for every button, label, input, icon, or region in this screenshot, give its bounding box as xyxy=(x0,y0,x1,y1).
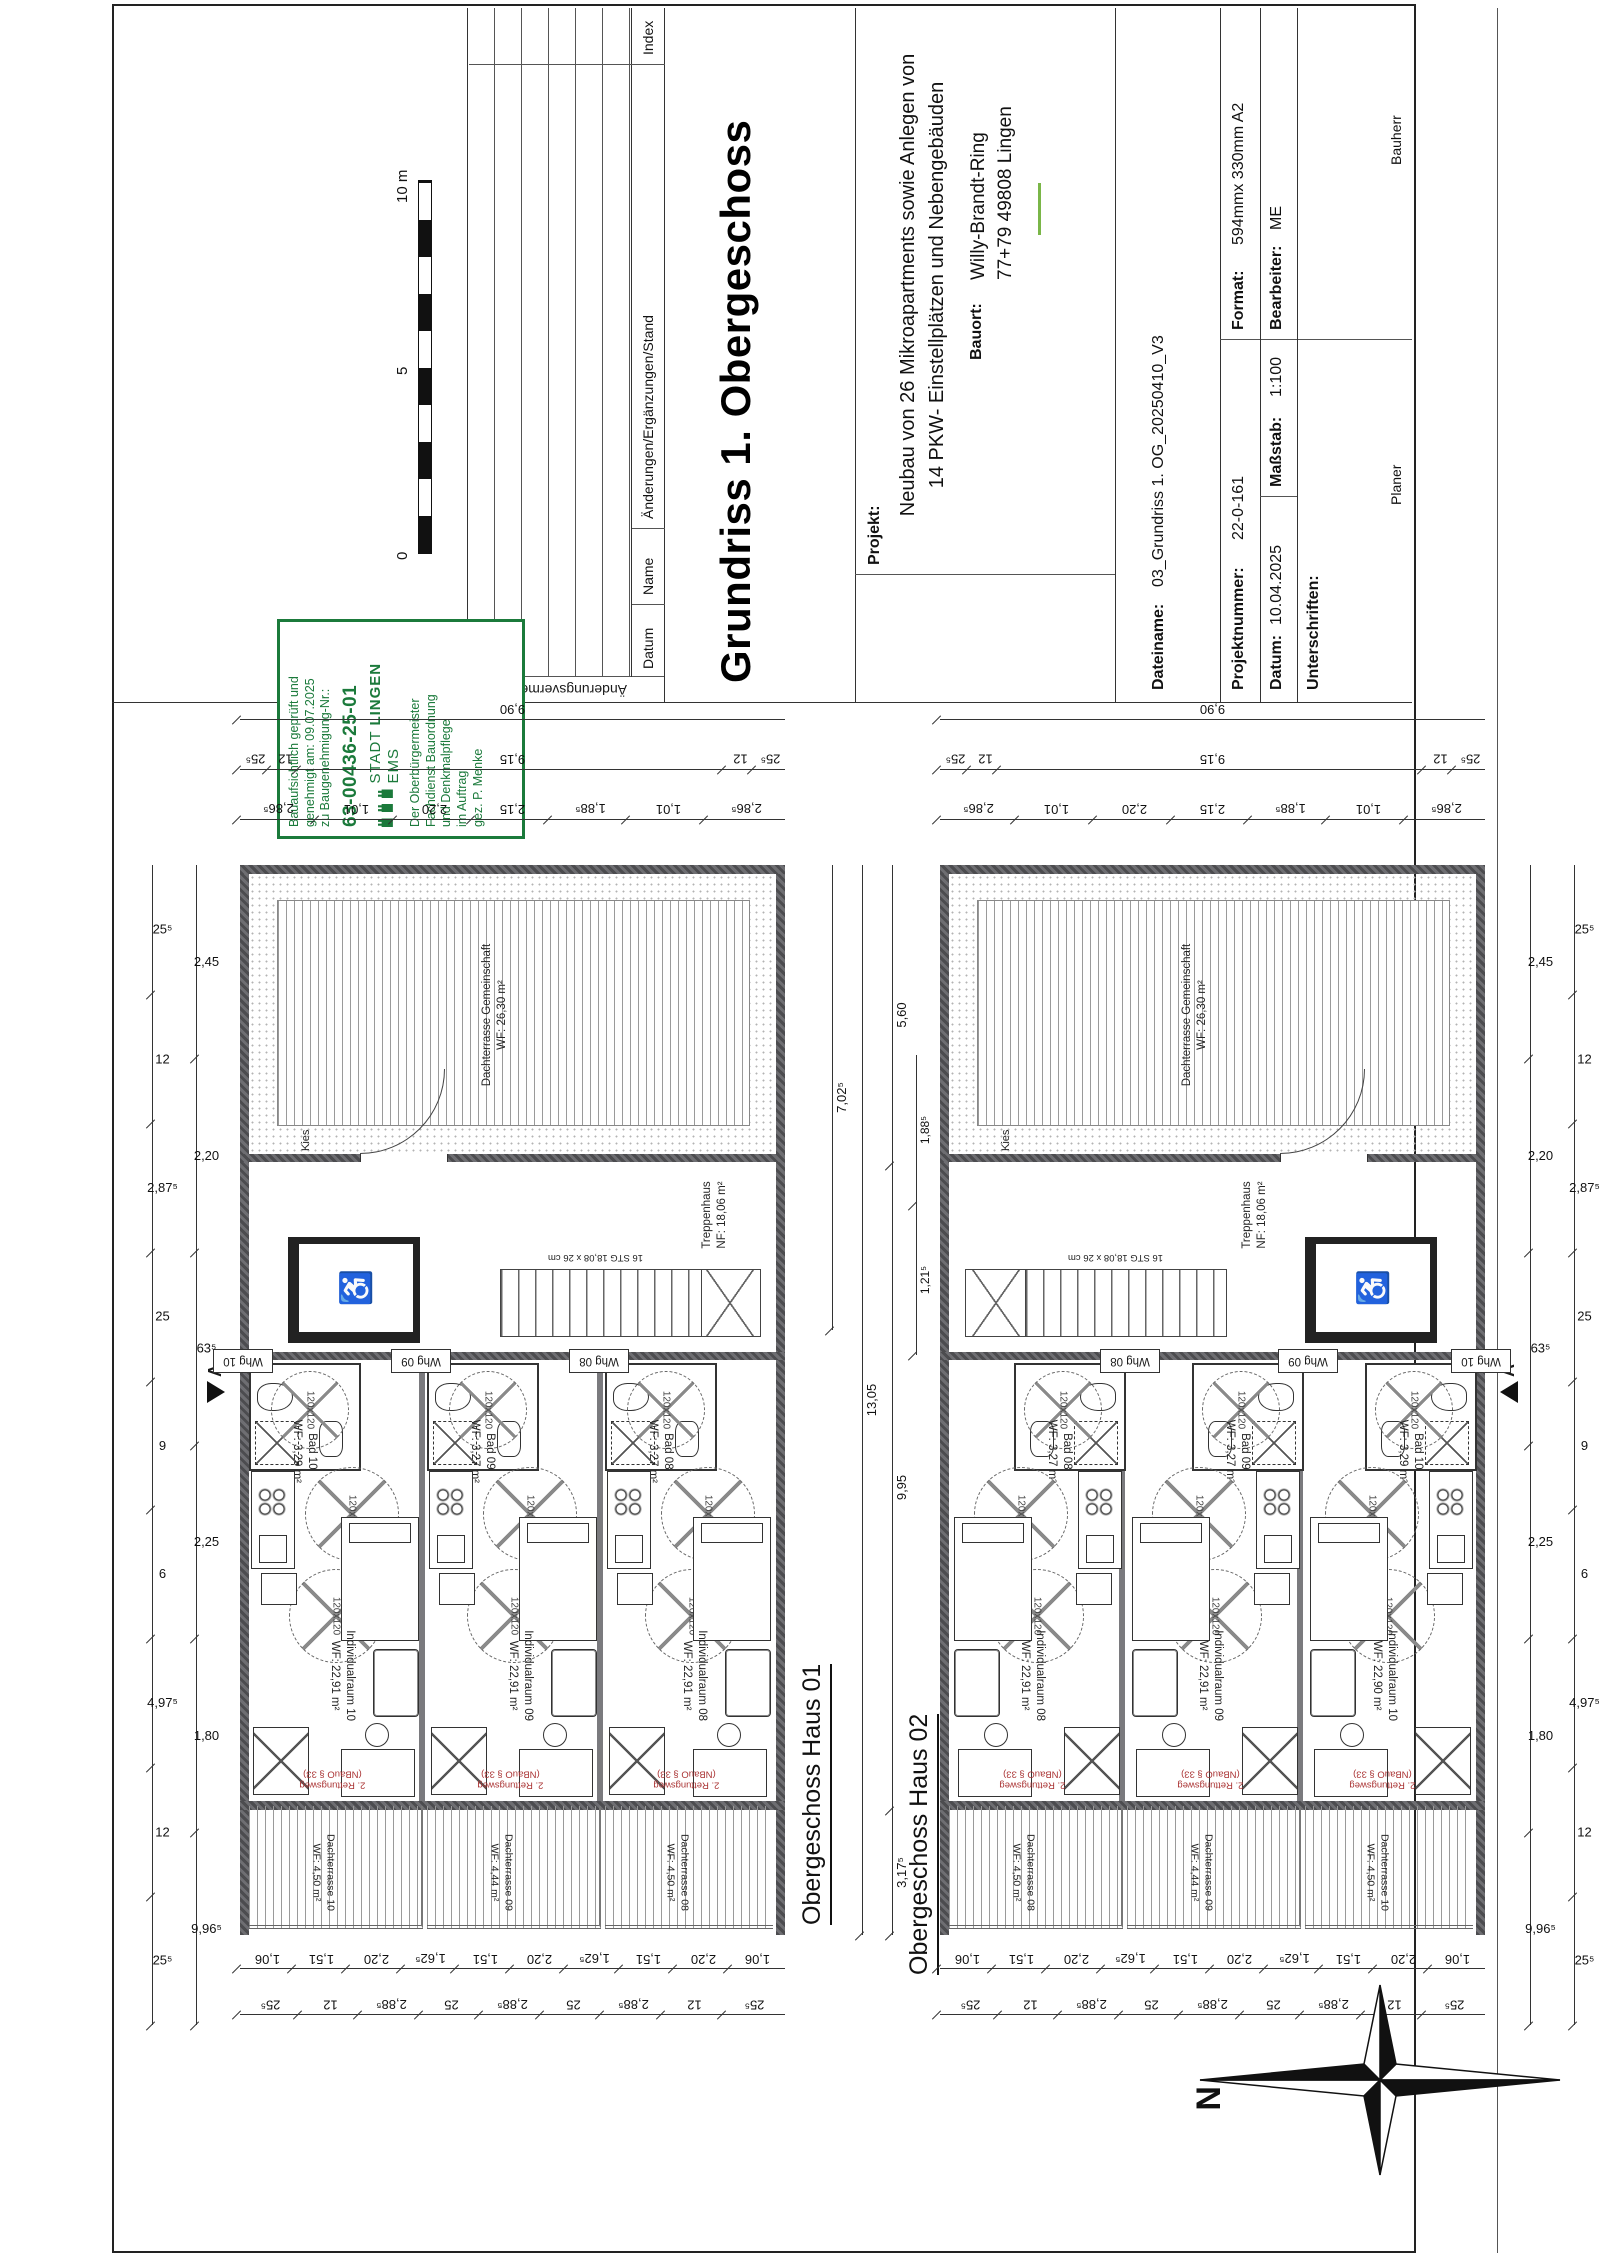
projektnummer-value: 22-0-161 xyxy=(1230,476,1248,540)
gap-dim-small: 1,21⁵ 1,88⁵ xyxy=(916,1055,933,1355)
bad-name: Bad 09 xyxy=(1237,1420,1252,1483)
sofa xyxy=(373,1649,419,1717)
haus01-wall-right xyxy=(240,865,785,874)
dim-value: 25⁵ xyxy=(260,1997,280,2012)
haus02-dim-right-inner: 2,86⁵ 1,01 2,20 2,15 1,88⁵ 1,01 2,86⁵ xyxy=(940,799,1485,820)
dim-value: 4,97⁵ xyxy=(147,1695,178,1710)
sofa xyxy=(954,1649,1000,1717)
dim-value: 12 xyxy=(978,752,992,767)
balcony-name: Dachterrasse 09 xyxy=(501,1834,515,1911)
haus01-wall-bottom xyxy=(776,865,785,1935)
haus01-stair-winder xyxy=(700,1269,761,1337)
dim-value: 2,86⁵ xyxy=(1431,801,1462,816)
dim-value: 9 xyxy=(1581,1437,1588,1452)
haus01-unit-whg08: 120x120 Bad 08 WF: 3,27 m² 120x120 120x1… xyxy=(605,1360,773,1801)
escape-route-line2: (NBauO § 33) xyxy=(460,1768,560,1779)
dim-value: 1,80 xyxy=(1528,1728,1553,1743)
dim-value: 1,62⁵ xyxy=(1115,1951,1146,1966)
dim-value: 2,15 xyxy=(500,802,525,817)
dim-value: 2,20 xyxy=(194,1148,219,1163)
individualraum-area: WF: 22,90 m² xyxy=(1369,1630,1384,1721)
haus01-terrace-label: Dachterrasse Gemeinschaft WF: 26,30 m² xyxy=(480,925,510,1105)
dim-value: 2,88⁵ xyxy=(376,1997,407,2012)
desk-chair xyxy=(984,1723,1008,1747)
balcony-name: Dachterrasse 08 xyxy=(1023,1834,1037,1911)
datum-value: 10.04.2025 xyxy=(1268,545,1286,625)
dim-value: 13,05 xyxy=(864,1384,879,1417)
haus02-dim-left-inner: 1,06 1,51 2,20 1,62⁵ 1,51 2,20 1,62⁵ 1,5… xyxy=(940,1950,1485,1969)
dim-value: 25⁵ xyxy=(960,1997,980,2012)
balcony-area: WF: 4,50 m² xyxy=(1009,1834,1023,1911)
individualraum-label: Individualraum 08 WF: 22,91 m² xyxy=(679,1630,709,1721)
kitchen-sink xyxy=(1086,1535,1114,1563)
haus01-kies-label: Kies xyxy=(300,1130,312,1151)
dim-value: 2,45 xyxy=(194,954,219,969)
kitchen-hob xyxy=(1262,1487,1292,1517)
dim-value: 12 xyxy=(278,752,292,767)
kitchen-hob xyxy=(257,1487,287,1517)
green-signature-mark xyxy=(1038,183,1041,235)
bad-name: Bad 08 xyxy=(1059,1420,1074,1483)
plan-sheet: Änderungsvermerke Datum Name Änderungen/… xyxy=(0,0,1600,2265)
revision-col-name: Name xyxy=(640,558,656,595)
haus01-elevator-car: ♿ xyxy=(297,1242,415,1334)
balcony-area: WF: 4,44 m² xyxy=(487,1834,501,1911)
bad-label: Bad 09 WF: 3,27 m² xyxy=(1222,1420,1252,1483)
bad-name: Bad 09 xyxy=(482,1420,497,1483)
dim-value: 1,51 xyxy=(1336,1952,1361,1967)
individualraum-name: Individualraum 10 xyxy=(1384,1630,1399,1721)
desk-chair xyxy=(717,1723,741,1747)
stamp-sub3: und Denkmalpflege xyxy=(439,631,455,827)
party-wall xyxy=(419,1360,425,1801)
haus02-dim-right-mid: 25⁵ 12 9,15 12 25⁵ xyxy=(940,749,1485,770)
dim-value: 25⁵ xyxy=(945,752,965,767)
bauort-address-line1: Willy-Brandt-Ring xyxy=(966,106,993,280)
dim-value: 6 xyxy=(1581,1566,1588,1581)
dim-value: 25⁵ xyxy=(1460,752,1480,767)
dim-value: 1,51 xyxy=(1009,1952,1034,1967)
unterschriften-label: Unterschriften: xyxy=(1305,575,1323,690)
balcony-name: Dachterrasse 10 xyxy=(323,1834,337,1911)
individualraum-label: Individualraum 10 WF: 22,91 m² xyxy=(327,1630,357,1721)
dateiname-label: Dateiname: xyxy=(1150,604,1168,690)
revision-col-index: Index xyxy=(640,21,656,55)
dim-value: 12 xyxy=(324,1998,338,2013)
haus02-stair-name: Treppenhaus xyxy=(1240,1165,1255,1265)
dim-value: 25 xyxy=(566,1998,580,2013)
haus02-unit-whg09: 120x120 Bad 09 WF: 3,27 m² 120x120 120x1… xyxy=(1127,1360,1300,1801)
balcony-name: Dachterrasse 10 xyxy=(1377,1834,1391,1911)
sofa xyxy=(551,1649,597,1717)
dim-value: 4,97⁵ xyxy=(1569,1695,1600,1710)
dim-value: 5,60 xyxy=(894,1002,909,1027)
dim-value: 1,62⁵ xyxy=(415,1951,446,1966)
whg-number-box: Whg 09 xyxy=(391,1349,451,1373)
dim-value: 25 xyxy=(155,1309,169,1324)
escape-route-line1: 2. Rettungsweg xyxy=(1332,1779,1432,1790)
escape-route-line2: (NBauO § 33) xyxy=(1332,1768,1432,1779)
individualraum-name: Individualraum 09 xyxy=(1210,1630,1225,1721)
individualraum-label: Individualraum 09 WF: 22,91 m² xyxy=(505,1630,535,1721)
kitchen-hob xyxy=(435,1487,465,1517)
sofa xyxy=(725,1649,771,1717)
bad-name: Bad 08 xyxy=(660,1420,675,1483)
revision-col-datum: Datum xyxy=(640,628,656,669)
sofa xyxy=(1132,1649,1178,1717)
dateiname-value: 03_Grundriss 1. OG_20250410_V3 xyxy=(1150,335,1168,587)
dim-value: 1,51 xyxy=(636,1952,661,1967)
bauort-label: Bauort: xyxy=(968,303,986,360)
scale-label-10m: 10 m xyxy=(394,170,411,203)
stamp-sub4: im Auftrag xyxy=(455,631,471,827)
dim-value: 1,51 xyxy=(1173,1952,1198,1967)
dim-value: 25⁵ xyxy=(153,922,173,937)
haus01-stair-name: Treppenhaus xyxy=(700,1165,715,1265)
dim-value: 2,20 xyxy=(1122,802,1147,817)
stamp-line3: zu Baugenehmigung-Nr.: xyxy=(318,631,334,827)
bed-pillow xyxy=(962,1523,1024,1543)
balcony-area: WF: 4,50 m² xyxy=(1363,1834,1377,1911)
bauort-address: Willy-Brandt-Ring 77+79 49808 Lingen xyxy=(966,106,1019,280)
dim-value: 12 xyxy=(733,752,747,767)
whg-number-box: Whg 10 xyxy=(213,1349,273,1373)
dim-value: 9,90 xyxy=(1200,702,1225,717)
dim-value: 12 xyxy=(155,1824,169,1839)
dim-value: 12 xyxy=(155,1051,169,1066)
table xyxy=(261,1573,297,1605)
haus02-unit-whg10: 120x120 Bad 10 WF: 3,29 m² 120x120 120x1… xyxy=(1305,1360,1473,1801)
kitchen-hob xyxy=(1084,1487,1114,1517)
haus01-terrace-door-gap xyxy=(360,1154,448,1162)
table xyxy=(617,1573,653,1605)
haus01-stair-steps-label: 16 STG 18,08 x 26 cm xyxy=(548,1252,643,1263)
escape-route-line1: 2. Rettungsweg xyxy=(1160,1779,1260,1790)
dim-value: 7,02⁵ xyxy=(834,1082,849,1113)
kitchen-sink xyxy=(437,1535,465,1563)
scale-label-5: 5 xyxy=(394,367,411,375)
bauherr-label: Bauherr xyxy=(1388,115,1404,165)
dim-value: 2,20 xyxy=(422,802,447,817)
kitchen-sink xyxy=(1437,1535,1465,1563)
balcony-label: Dachterrasse 08 WF: 4,50 m² xyxy=(1009,1834,1036,1911)
desk-chair xyxy=(1162,1723,1186,1747)
dim-value: 12 xyxy=(1577,1824,1591,1839)
individualraum-label: Individualraum 08 WF: 22,91 m² xyxy=(1017,1630,1047,1721)
haus01-dim-right-outer: 9,90 xyxy=(240,699,785,720)
revision-table: Änderungsvermerke Datum Name Änderungen/… xyxy=(467,8,665,703)
dim-value: 1,21⁵ xyxy=(918,1266,932,1294)
table xyxy=(439,1573,475,1605)
individualraum-label: Individualraum 10 WF: 22,90 m² xyxy=(1369,1630,1399,1721)
haus02-wall-corridor xyxy=(940,1352,1485,1360)
bed-pillow xyxy=(527,1523,589,1543)
escape-route-label: 2. Rettungsweg (NBauO § 33) xyxy=(982,1768,1082,1791)
haus02-kies-label: Kies xyxy=(1000,1130,1012,1151)
individualraum-name: Individualraum 08 xyxy=(1032,1630,1047,1721)
revision-col-line3 xyxy=(469,64,665,65)
escape-route-line2: (NBauO § 33) xyxy=(1160,1768,1260,1779)
desk-chair xyxy=(365,1723,389,1747)
haus02-balcony-08: Dachterrasse 08 WF: 4,50 m² xyxy=(949,1806,1123,1929)
dim-value: 2,15 xyxy=(1200,802,1225,817)
revision-empty-rows xyxy=(468,8,631,677)
desk-chair xyxy=(1340,1723,1364,1747)
sofa xyxy=(1310,1649,1356,1717)
dim-value: 63⁵ xyxy=(1531,1341,1551,1356)
dim-value: 2,87⁵ xyxy=(1569,1180,1600,1195)
dim-value: 1,62⁵ xyxy=(1279,1951,1310,1966)
projekt-divider xyxy=(855,574,1115,575)
dim-value: 12 xyxy=(1433,752,1447,767)
individualraum-label: Individualraum 09 WF: 22,91 m² xyxy=(1195,1630,1225,1721)
dim-value: 2,20 xyxy=(1391,1952,1416,1967)
dim-value: 25⁵ xyxy=(153,1953,173,1968)
dim-value: 9,90 xyxy=(500,702,525,717)
balcony-area: WF: 4,50 m² xyxy=(663,1834,677,1911)
revision-header-row: Datum Name Änderungen/Ergänzungen/Stand … xyxy=(631,8,665,677)
bed-pillow xyxy=(1140,1523,1202,1543)
dim-value: 9,96⁵ xyxy=(1525,1921,1556,1936)
escape-route-label: 2. Rettungsweg (NBauO § 33) xyxy=(1332,1768,1432,1791)
dim-value: 25⁵ xyxy=(760,752,780,767)
escape-route-line2: (NBauO § 33) xyxy=(282,1768,382,1779)
massstab-value: 1:100 xyxy=(1268,357,1286,397)
haus01-elevator: ♿ xyxy=(288,1237,420,1343)
haus01-dim-top-outer: 25⁵ 12 4,97⁵ 6 9 25 2,87⁵ 12 25⁵ xyxy=(152,865,173,2025)
balcony-label: Dachterrasse 09 WF: 4,44 m² xyxy=(1187,1834,1214,1911)
balcony-label: Dachterrasse 10 WF: 4,50 m² xyxy=(309,1834,336,1911)
haus01-wall-top xyxy=(240,865,249,1935)
dim-value: 25⁵ xyxy=(1575,1953,1595,1968)
haus02-elevator-car: ♿ xyxy=(1314,1242,1432,1334)
dim-value: 1,06 xyxy=(1445,1952,1470,1967)
titleblock-line-5 xyxy=(1297,8,1298,703)
format-value: 594mmx 330mm A2 xyxy=(1230,103,1248,245)
balcony-label: Dachterrasse 10 WF: 4,50 m² xyxy=(1363,1834,1390,1911)
dim-value: 1,88⁵ xyxy=(1275,801,1306,816)
dim-value: 63⁵ xyxy=(197,1341,217,1356)
balcony-label: Dachterrasse 08 WF: 4,50 m² xyxy=(663,1834,690,1911)
dim-value: 12 xyxy=(687,1998,701,2013)
haus01-balcony-09: Dachterrasse 09 WF: 4,44 m² xyxy=(427,1806,601,1929)
bed-pillow xyxy=(701,1523,763,1543)
dim-value: 25⁵ xyxy=(745,1997,765,2012)
massstab-label: Maßstab: xyxy=(1268,417,1286,487)
whg-number-box: Whg 10 xyxy=(1451,1349,1511,1373)
haus02-stair-label: Treppenhaus NF: 18,06 m² xyxy=(1240,1165,1270,1265)
dim-value: 1,06 xyxy=(255,1952,280,1967)
haus02-dim-right-outer: 9,90 xyxy=(940,699,1485,720)
whg-number-box: Whg 08 xyxy=(569,1349,629,1373)
balcony-label: Dachterrasse 09 WF: 4,44 m² xyxy=(487,1834,514,1911)
compass-icon: N xyxy=(1185,1975,1575,2185)
meta-divider-2 xyxy=(1260,496,1297,497)
dim-value: 1,80 xyxy=(194,1728,219,1743)
meta-divider-1 xyxy=(1220,339,1412,340)
escape-route-line2: (NBauO § 33) xyxy=(982,1768,1082,1779)
dim-value: 1,01 xyxy=(1044,802,1069,817)
escape-route-label: 2. Rettungsweg (NBauO § 33) xyxy=(636,1768,736,1791)
haus02-terrace-label: Dachterrasse Gemeinschaft WF: 26,30 m² xyxy=(1180,925,1210,1105)
balcony-area: WF: 4,44 m² xyxy=(1187,1834,1201,1911)
kitchen-hob xyxy=(613,1487,643,1517)
kitchen-sink xyxy=(615,1535,643,1563)
haus01-wall-corridor xyxy=(240,1352,785,1360)
north-arrow: N xyxy=(1185,1975,1580,2185)
desk-chair xyxy=(543,1723,567,1747)
titleblock-line-1 xyxy=(855,8,856,703)
dim-value: 2,25 xyxy=(1528,1534,1553,1549)
haus02-terrace-name: Dachterrasse Gemeinschaft xyxy=(1180,925,1195,1105)
dim-value: 2,88⁵ xyxy=(618,1997,649,2012)
drawing-image: Änderungsvermerke Datum Name Änderungen/… xyxy=(0,0,1600,2265)
haus02-wall-bottom xyxy=(1476,865,1485,1935)
stamp-sub2: Fachdienst Bauordnung xyxy=(424,631,440,827)
bed-pillow xyxy=(349,1523,411,1543)
dim-value: 1,01 xyxy=(1356,802,1381,817)
projekt-text-line2: 14 PKW- Einstellplätzen und Nebengebäude… xyxy=(923,25,952,545)
dim-value: 9,15 xyxy=(500,752,525,767)
dim-value: 2,86⁵ xyxy=(264,801,295,816)
dim-value: 2,20 xyxy=(1227,1952,1252,1967)
dim-value: 2,20 xyxy=(691,1952,716,1967)
bad-label: Bad 08 WF: 3,27 m² xyxy=(1044,1420,1074,1483)
bad-label: Bad 10 WF: 3,29 m² xyxy=(1395,1420,1425,1483)
haus01-dim-left-outer: 25⁵ 12 2,88⁵ 25 2,88⁵ 25 2,88⁵ 12 25⁵ xyxy=(240,1996,785,2015)
dim-value: 1,88⁵ xyxy=(575,801,606,816)
haus02-terrace-area: WF: 26,30 m² xyxy=(1195,925,1210,1105)
haus02-stair xyxy=(1025,1269,1227,1337)
dim-value: 9,96⁵ xyxy=(191,1921,222,1936)
format-label: Format: xyxy=(1230,270,1248,330)
dim-value: 2,86⁵ xyxy=(964,801,995,816)
gap-dim-702: 7,02⁵ xyxy=(832,865,851,1330)
stamp-line2: genehmigt am: 09.07.2025 xyxy=(303,631,319,827)
dim-value: 6 xyxy=(159,1566,166,1581)
kitchen-sink xyxy=(1264,1535,1292,1563)
dim-value: 25 xyxy=(1577,1309,1591,1324)
haus02-unit-whg08: 120x120 Bad 08 WF: 3,27 m² 120x120 120x1… xyxy=(949,1360,1122,1801)
haus02-balcony-10: Dachterrasse 10 WF: 4,50 m² xyxy=(1305,1806,1473,1929)
dim-value: 25 xyxy=(1145,1998,1159,2013)
paper-edge-line xyxy=(1497,8,1498,2253)
kitchen-hob xyxy=(1435,1487,1465,1517)
balcony-name: Dachterrasse 09 xyxy=(1201,1834,1215,1911)
projekt-text: Neubau von 26 Mikroapartments sowie Anle… xyxy=(894,25,952,545)
haus02-wall-terrace xyxy=(940,1154,1485,1162)
individualraum-area: WF: 22,91 m² xyxy=(505,1630,520,1721)
table xyxy=(1076,1573,1112,1605)
table xyxy=(1254,1573,1290,1605)
table xyxy=(1427,1573,1463,1605)
haus01-dim-top-inner: 9,96⁵ 1,80 2,25 63⁵ 2,20 2,45 xyxy=(196,865,217,2025)
dim-value: 25 xyxy=(445,1998,459,2013)
haus01-terrace-area: WF: 26,30 m² xyxy=(495,925,510,1105)
haus01-stair xyxy=(500,1269,702,1337)
individualraum-name: Individualraum 10 xyxy=(342,1630,357,1721)
dim-value: 1,06 xyxy=(955,1952,980,1967)
dim-value: 2,45 xyxy=(1528,954,1553,969)
bad-name: Bad 10 xyxy=(304,1420,319,1483)
datum-label: Datum: xyxy=(1268,635,1286,690)
gap-dim-1305: 13,05 xyxy=(862,865,881,1935)
haus01-stair-label: Treppenhaus NF: 18,06 m² xyxy=(700,1165,730,1265)
dim-value: 9,15 xyxy=(1200,752,1225,767)
haus02-terrace-deck xyxy=(977,900,1450,1126)
haus02-wall-top xyxy=(940,865,949,1935)
titleblock-line-4 xyxy=(1260,8,1261,703)
titleblock-line-3 xyxy=(1220,8,1221,703)
haus02-elevator: ♿ xyxy=(1305,1237,1437,1343)
dim-value: 1,51 xyxy=(309,1952,334,1967)
bed-pillow xyxy=(1318,1523,1380,1543)
haus01-balcony-08: Dachterrasse 08 WF: 4,50 m² xyxy=(605,1806,773,1929)
dim-value: 1,62⁵ xyxy=(579,1951,610,1966)
individualraum-area: WF: 22,91 m² xyxy=(679,1630,694,1721)
section-triangle-icon xyxy=(1500,1381,1518,1403)
haus02-stair-steps-label: 16 STG 18,08 x 26 cm xyxy=(1068,1252,1163,1263)
dim-value: 9,95 xyxy=(894,1475,909,1500)
balcony-name: Dachterrasse 08 xyxy=(677,1834,691,1911)
scale-label-0: 0 xyxy=(394,552,411,560)
scale-bar xyxy=(418,180,432,554)
individualraum-area: WF: 22,91 m² xyxy=(1195,1630,1210,1721)
titleblock-line-2 xyxy=(1115,8,1116,703)
projekt-text-line1: Neubau von 26 Mikroapartments sowie Anle… xyxy=(894,25,923,545)
haus02-wall-right xyxy=(940,865,1485,874)
bearbeiter-label: Bearbeiter: xyxy=(1268,246,1286,330)
haus02-terrace-door-gap xyxy=(1280,1154,1368,1162)
dim-value: 25⁵ xyxy=(245,752,265,767)
haus01-dim-right-inner: 2,86⁵ 1,01 2,20 2,15 1,88⁵ 1,01 2,86⁵ xyxy=(240,799,785,820)
dim-value: 2,25 xyxy=(194,1534,219,1549)
revision-col-line xyxy=(632,604,665,605)
escape-route-label: 2. Rettungsweg (NBauO § 33) xyxy=(282,1768,382,1791)
haus01-terrace-deck xyxy=(277,900,750,1126)
party-wall xyxy=(597,1360,603,1801)
individualraum-area: WF: 22,91 m² xyxy=(1017,1630,1032,1721)
haus02-plan-label: Obergeschoss Haus 02 xyxy=(905,1714,939,1975)
escape-route-line1: 2. Rettungsweg xyxy=(982,1779,1082,1790)
projektnummer-label: Projektnummer: xyxy=(1230,567,1248,690)
north-letter: N xyxy=(1190,2086,1228,2111)
escape-route-line1: 2. Rettungsweg xyxy=(282,1779,382,1790)
haus02-stair-winder xyxy=(965,1269,1026,1337)
revision-col-aenderungen: Änderungen/Ergänzungen/Stand xyxy=(640,315,656,519)
haus01-dim-left-inner: 1,06 1,51 2,20 1,62⁵ 1,51 2,20 1,62⁵ 1,5… xyxy=(240,1950,785,1969)
individualraum-name: Individualraum 08 xyxy=(694,1630,709,1721)
dim-value: 2,20 xyxy=(527,1952,552,1967)
revision-col-line2 xyxy=(632,528,665,529)
haus02-dim-bottom-inner: 9,96⁵ 1,80 2,25 63⁵ 2,20 2,45 xyxy=(1530,865,1551,2025)
bad-name: Bad 10 xyxy=(1410,1420,1425,1483)
stamp-approval-number: 63-00436-25-01 xyxy=(339,631,363,827)
planer-label: Planer xyxy=(1388,465,1404,505)
haus01-unit-whg09: 120x120 Bad 09 WF: 3,27 m² 120x120 120x1… xyxy=(427,1360,600,1801)
tower-icon xyxy=(378,790,393,799)
sheet-title: Grundriss 1. Obergeschoss xyxy=(712,120,760,683)
escape-route-label: 2. Rettungsweg (NBauO § 33) xyxy=(460,1768,560,1791)
escape-route-label: 2. Rettungsweg (NBauO § 33) xyxy=(1160,1768,1260,1791)
dim-value: 2,20 xyxy=(1064,1952,1089,1967)
escape-route-line1: 2. Rettungsweg xyxy=(460,1779,560,1790)
haus01-terrace-name: Dachterrasse Gemeinschaft xyxy=(480,925,495,1105)
dim-value: 2,88⁵ xyxy=(497,1997,528,2012)
dim-value: 9 xyxy=(159,1437,166,1452)
projekt-label: Projekt: xyxy=(866,505,884,565)
haus02-dim-bottom-outer: 25⁵ 12 4,97⁵ 6 9 25 2,87⁵ 12 25⁵ xyxy=(1574,865,1595,2025)
